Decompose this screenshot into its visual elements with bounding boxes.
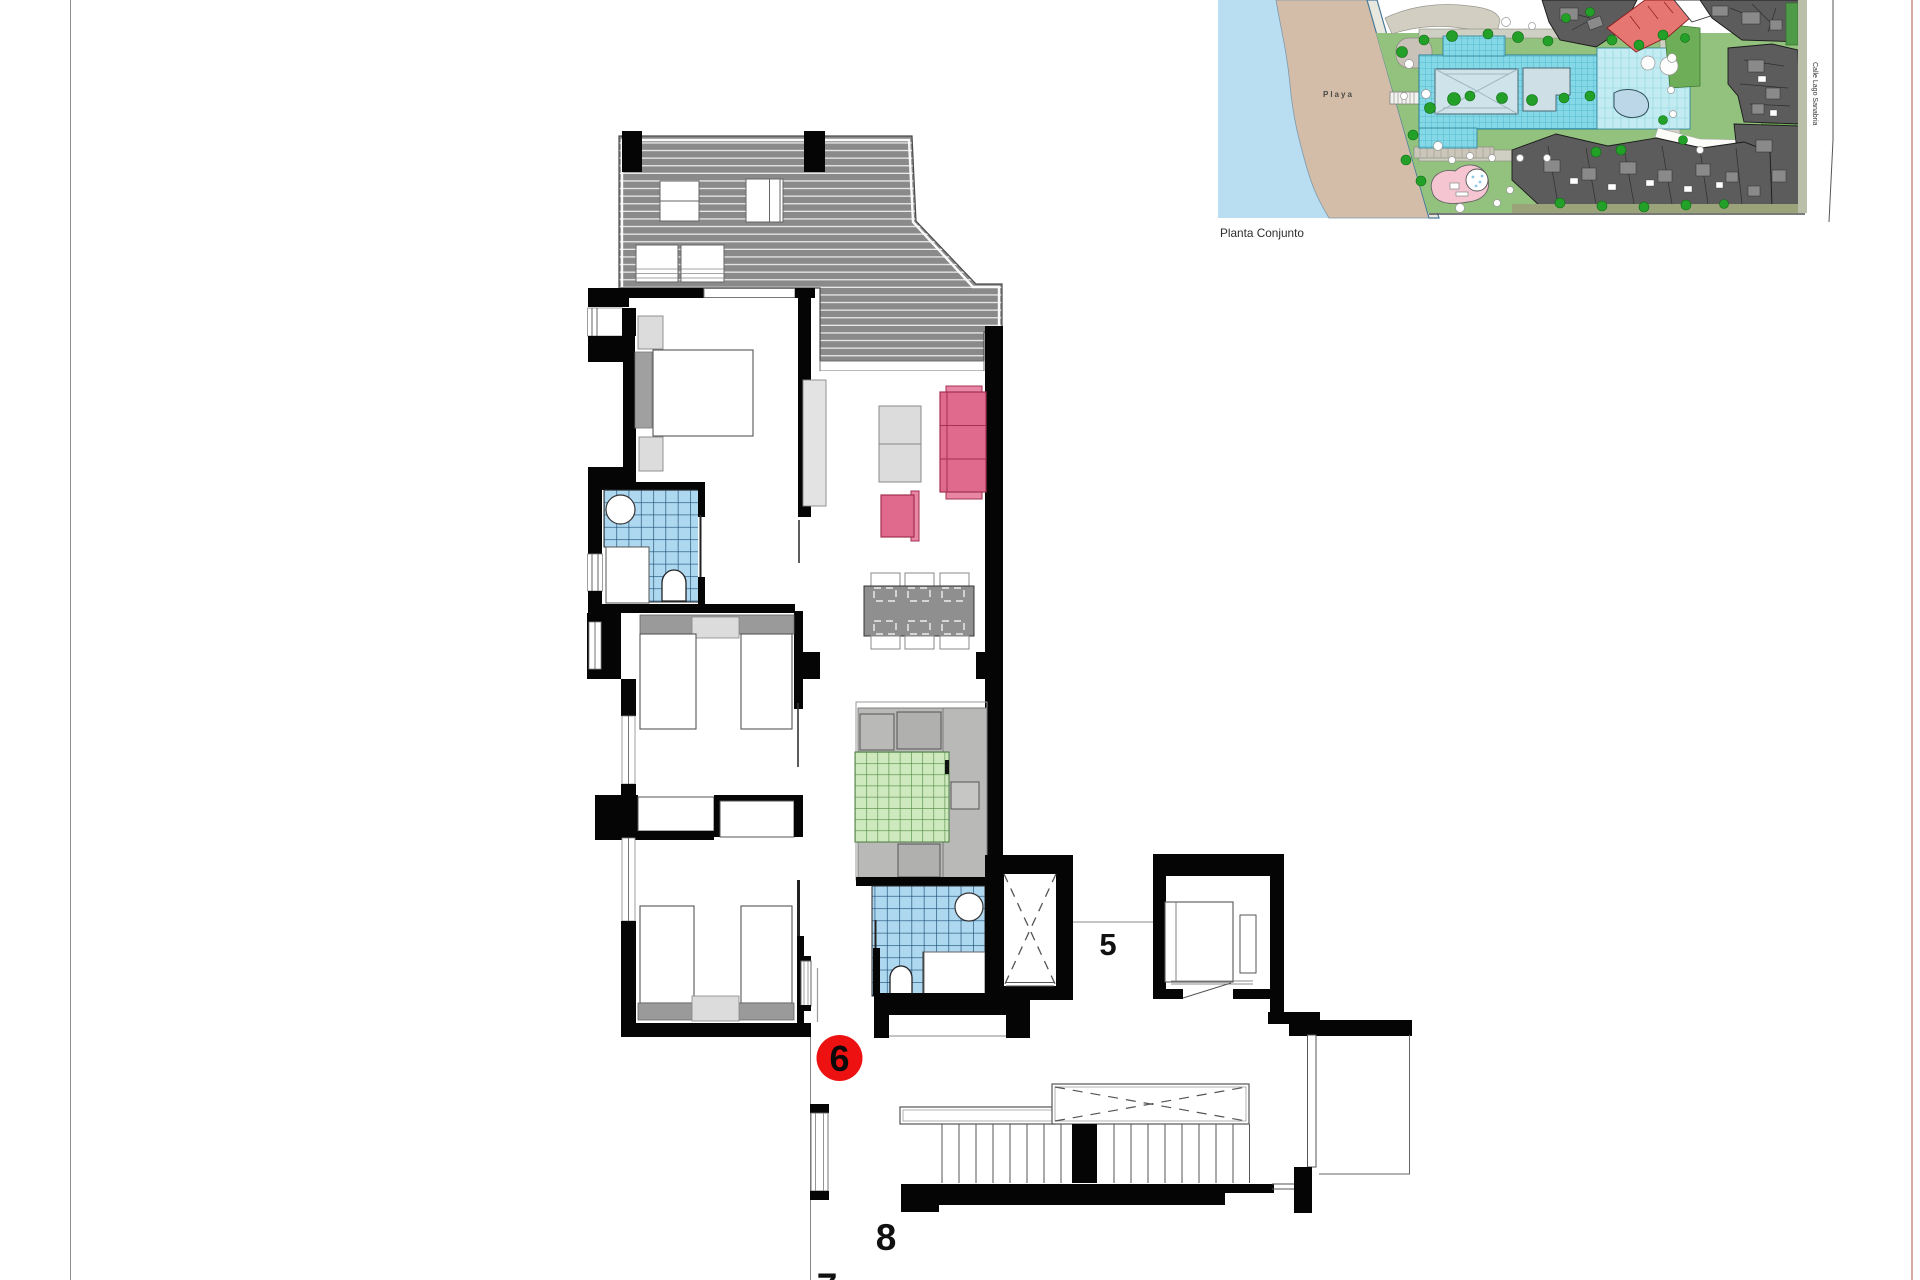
svg-text:8: 8: [876, 1217, 897, 1258]
svg-text:6: 6: [829, 1038, 849, 1079]
svg-text:Playa: Playa: [1323, 90, 1354, 99]
svg-text:Planta Conjunto: Planta Conjunto: [1220, 226, 1304, 240]
svg-text:Calle Lago Sanabria: Calle Lago Sanabria: [1811, 62, 1818, 126]
svg-text:5: 5: [1099, 927, 1116, 962]
svg-text:7: 7: [817, 1266, 838, 1280]
